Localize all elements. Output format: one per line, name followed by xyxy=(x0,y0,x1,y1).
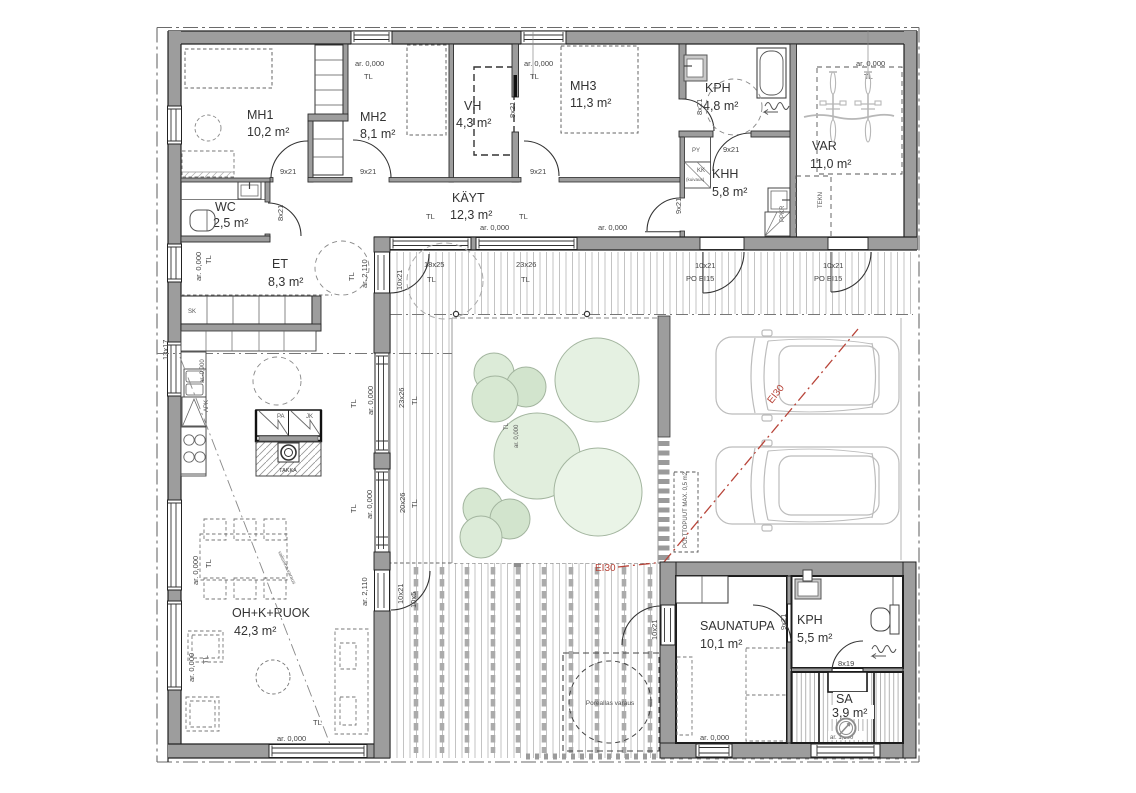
svg-text:ET: ET xyxy=(272,257,288,271)
svg-text:SA: SA xyxy=(836,692,853,706)
svg-text:SK: SK xyxy=(188,309,196,315)
svg-text:10x21: 10x21 xyxy=(650,620,659,640)
svg-text:10x21: 10x21 xyxy=(396,584,405,604)
svg-text:ar. 0,000: ar. 0,000 xyxy=(277,734,306,743)
svg-text:23x26: 23x26 xyxy=(516,260,536,269)
svg-text:8x21: 8x21 xyxy=(508,102,517,118)
svg-text:TL: TL xyxy=(427,275,436,284)
svg-text:9x21: 9x21 xyxy=(674,198,683,214)
svg-text:ar. 0,000: ar. 0,000 xyxy=(366,386,375,415)
svg-text:TL: TL xyxy=(201,655,210,664)
svg-text:TL: TL xyxy=(364,72,373,81)
svg-text:MH2: MH2 xyxy=(360,110,386,124)
svg-text:8x19: 8x19 xyxy=(838,659,854,668)
svg-text:8,1 m²: 8,1 m² xyxy=(360,127,395,141)
svg-text:VAR: VAR xyxy=(812,139,837,153)
svg-text:WC: WC xyxy=(215,200,236,214)
svg-text:Poreallas varaus: Poreallas varaus xyxy=(586,700,635,707)
svg-text:13x17: 13x17 xyxy=(161,340,170,360)
svg-text:18x25: 18x25 xyxy=(424,260,444,269)
svg-text:42,3 m²: 42,3 m² xyxy=(234,624,276,638)
svg-text:KPH: KPH xyxy=(797,613,823,627)
svg-text:KHH: KHH xyxy=(712,167,738,181)
svg-text:VH: VH xyxy=(464,99,481,113)
svg-text:PO EI15: PO EI15 xyxy=(814,274,842,283)
svg-text:EI30: EI30 xyxy=(595,563,616,574)
svg-text:TEKN: TEKN xyxy=(818,192,824,208)
svg-text:ar. 0,000: ar. 0,000 xyxy=(514,424,520,448)
svg-text:TL: TL xyxy=(204,255,213,264)
svg-text:TL: TL xyxy=(313,718,322,727)
svg-text:10,2 m²: 10,2 m² xyxy=(247,125,289,139)
svg-text:ar. 0,000: ar. 0,000 xyxy=(194,252,203,281)
svg-text:9x21: 9x21 xyxy=(360,167,376,176)
svg-text:5,5 m²: 5,5 m² xyxy=(797,631,832,645)
svg-text:9x21: 9x21 xyxy=(723,145,739,154)
svg-text:23x26: 23x26 xyxy=(397,388,406,408)
svg-text:ar. 2,110: ar. 2,110 xyxy=(360,577,369,606)
svg-text:TAKKA: TAKKA xyxy=(279,468,297,474)
svg-text:ar. 0,000: ar. 0,000 xyxy=(524,59,553,68)
svg-text:ar. 0,000: ar. 0,000 xyxy=(365,490,374,519)
svg-text:MH3: MH3 xyxy=(570,79,596,93)
svg-text:PA: PA xyxy=(277,414,285,420)
svg-text:PO EI15: PO EI15 xyxy=(686,274,714,283)
svg-text:TL: TL xyxy=(349,399,358,408)
svg-text:POLTTOPUUT MAX. 0,5 m2: POLTTOPUUT MAX. 0,5 m2 xyxy=(683,471,689,548)
svg-text:ar. 2,110: ar. 2,110 xyxy=(360,259,369,288)
svg-text:ar. 0,000: ar. 0,000 xyxy=(187,653,196,682)
svg-text:TL: TL xyxy=(349,504,358,513)
svg-text:KÄYT: KÄYT xyxy=(452,191,485,205)
svg-text:TL: TL xyxy=(204,559,213,568)
svg-text:KPH: KPH xyxy=(705,81,731,95)
svg-text:JK: JK xyxy=(306,414,313,420)
svg-text:TL: TL xyxy=(426,212,435,221)
svg-text:10x21: 10x21 xyxy=(395,270,404,290)
svg-text:8,3 m²: 8,3 m² xyxy=(268,275,303,289)
svg-text:9x21: 9x21 xyxy=(280,167,296,176)
svg-text:4,8 m²: 4,8 m² xyxy=(703,99,738,113)
svg-text:TL: TL xyxy=(504,422,510,430)
svg-text:PY: PY xyxy=(692,148,700,154)
svg-text:(kuivaus): (kuivaus) xyxy=(686,177,705,182)
svg-text:ar. 0,000: ar. 0,000 xyxy=(355,59,384,68)
svg-text:9x21: 9x21 xyxy=(530,167,546,176)
svg-text:TL: TL xyxy=(347,272,356,281)
svg-text:20x26: 20x26 xyxy=(398,493,407,513)
svg-text:2,5 m²: 2,5 m² xyxy=(213,216,248,230)
svg-text:MH1: MH1 xyxy=(247,108,273,122)
svg-text:ar. 0,000: ar. 0,000 xyxy=(598,223,627,232)
svg-text:11,0 m²: 11,0 m² xyxy=(810,157,851,171)
svg-text:TL: TL xyxy=(410,499,419,508)
svg-text:8x21: 8x21 xyxy=(276,205,285,221)
svg-text:9x21: 9x21 xyxy=(779,614,788,630)
svg-text:TL: TL xyxy=(521,275,530,284)
svg-text:3,9 m²: 3,9 m² xyxy=(832,706,867,720)
svg-text:TL: TL xyxy=(530,72,539,81)
svg-text:11,3 m²: 11,3 m² xyxy=(570,96,611,110)
svg-text:SAUNATUPA: SAUNATUPA xyxy=(700,619,775,633)
svg-text:OH+K+RUOK: OH+K+RUOK xyxy=(232,606,310,620)
svg-text:ar.-0,900: ar.-0,900 xyxy=(200,359,206,383)
svg-text:APK: APK xyxy=(204,400,210,412)
svg-text:5,8 m²: 5,8 m² xyxy=(712,185,747,199)
svg-text:12,3 m²: 12,3 m² xyxy=(450,208,492,222)
svg-text:PPKR: PPKR xyxy=(780,205,786,222)
svg-text:TL: TL xyxy=(519,212,528,221)
svg-text:ar. 0,000: ar. 0,000 xyxy=(700,733,729,742)
svg-text:10,1 m²: 10,1 m² xyxy=(700,637,742,651)
svg-text:KK: KK xyxy=(697,168,705,174)
svg-text:ar. 0,000: ar. 0,000 xyxy=(191,556,200,585)
svg-text:10x5: 10x5 xyxy=(409,592,418,608)
svg-text:ar. 0,000: ar. 0,000 xyxy=(480,223,509,232)
svg-text:TL: TL xyxy=(410,396,419,405)
svg-text:10x21: 10x21 xyxy=(695,261,715,270)
svg-text:10x21: 10x21 xyxy=(823,261,843,270)
